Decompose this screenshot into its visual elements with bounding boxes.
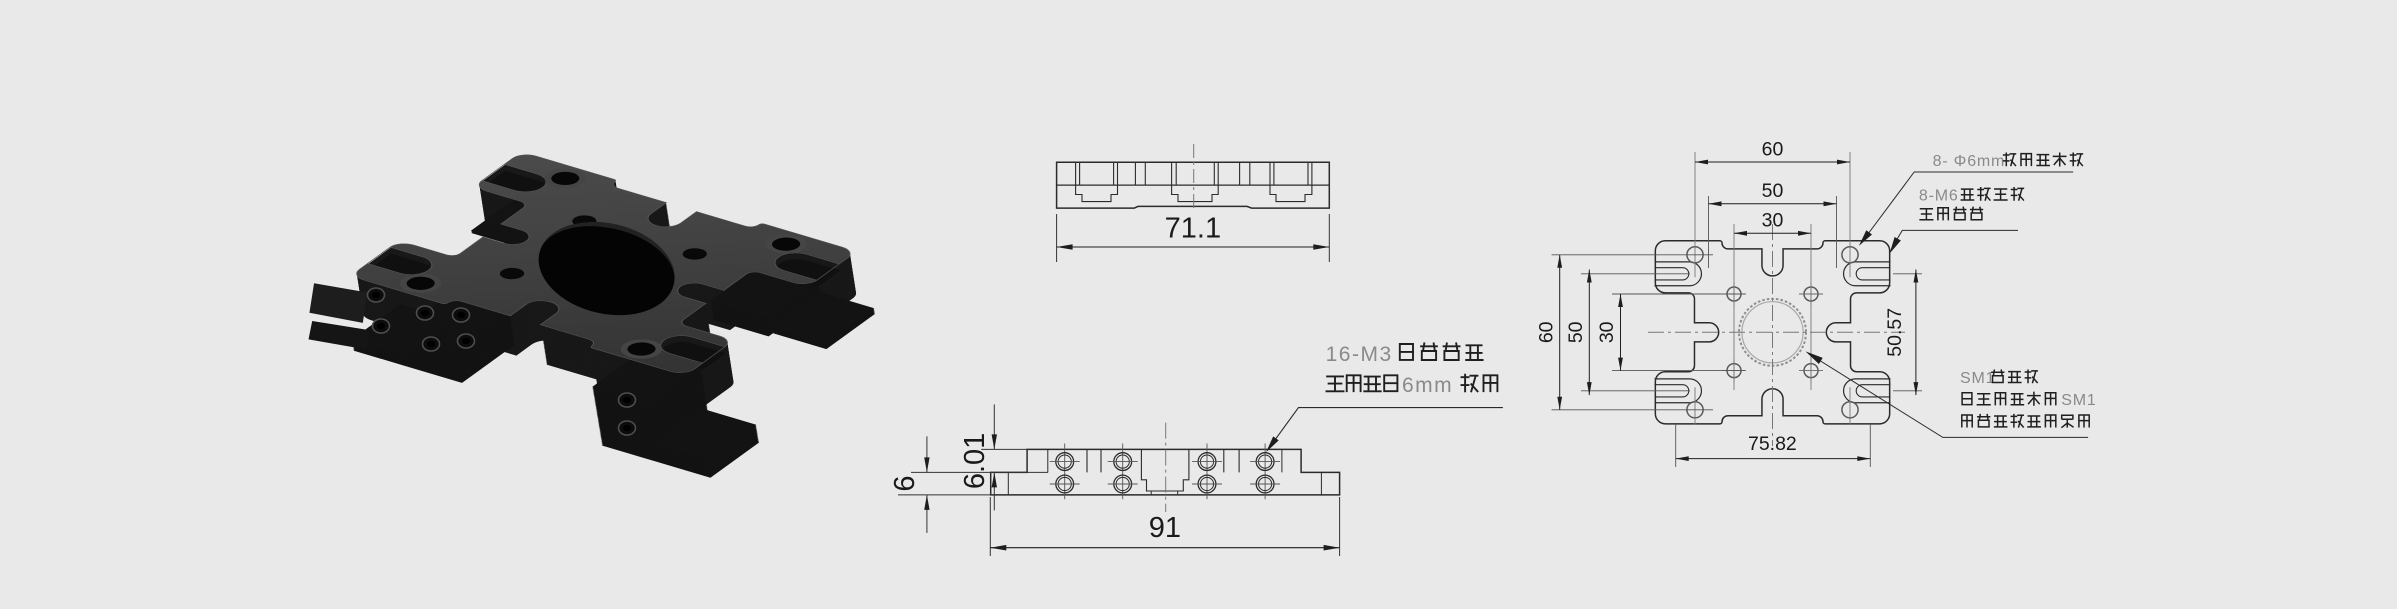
svg-text:60: 60 (1536, 321, 1558, 343)
svg-text:6: 6 (889, 476, 921, 492)
svg-text:50.57: 50.57 (1884, 308, 1906, 357)
svg-text:SM1: SM1 (1960, 370, 1995, 387)
svg-text:50: 50 (1762, 180, 1784, 202)
svg-text:8- Φ6mm: 8- Φ6mm (1933, 153, 2006, 170)
svg-text:6mm: 6mm (1402, 374, 1453, 397)
svg-text:71.1: 71.1 (1165, 213, 1221, 245)
svg-text:75.82: 75.82 (1748, 433, 1797, 455)
svg-text:30: 30 (1596, 321, 1618, 343)
svg-text:SM1: SM1 (2061, 392, 2096, 409)
svg-text:50: 50 (1565, 321, 1587, 343)
svg-text:30: 30 (1762, 209, 1784, 231)
svg-text:8-M6: 8-M6 (1919, 188, 1959, 205)
svg-text:16-M3: 16-M3 (1326, 343, 1393, 366)
svg-text:91: 91 (1149, 512, 1181, 544)
svg-text:60: 60 (1762, 139, 1784, 161)
svg-text:6.01: 6.01 (959, 433, 991, 489)
